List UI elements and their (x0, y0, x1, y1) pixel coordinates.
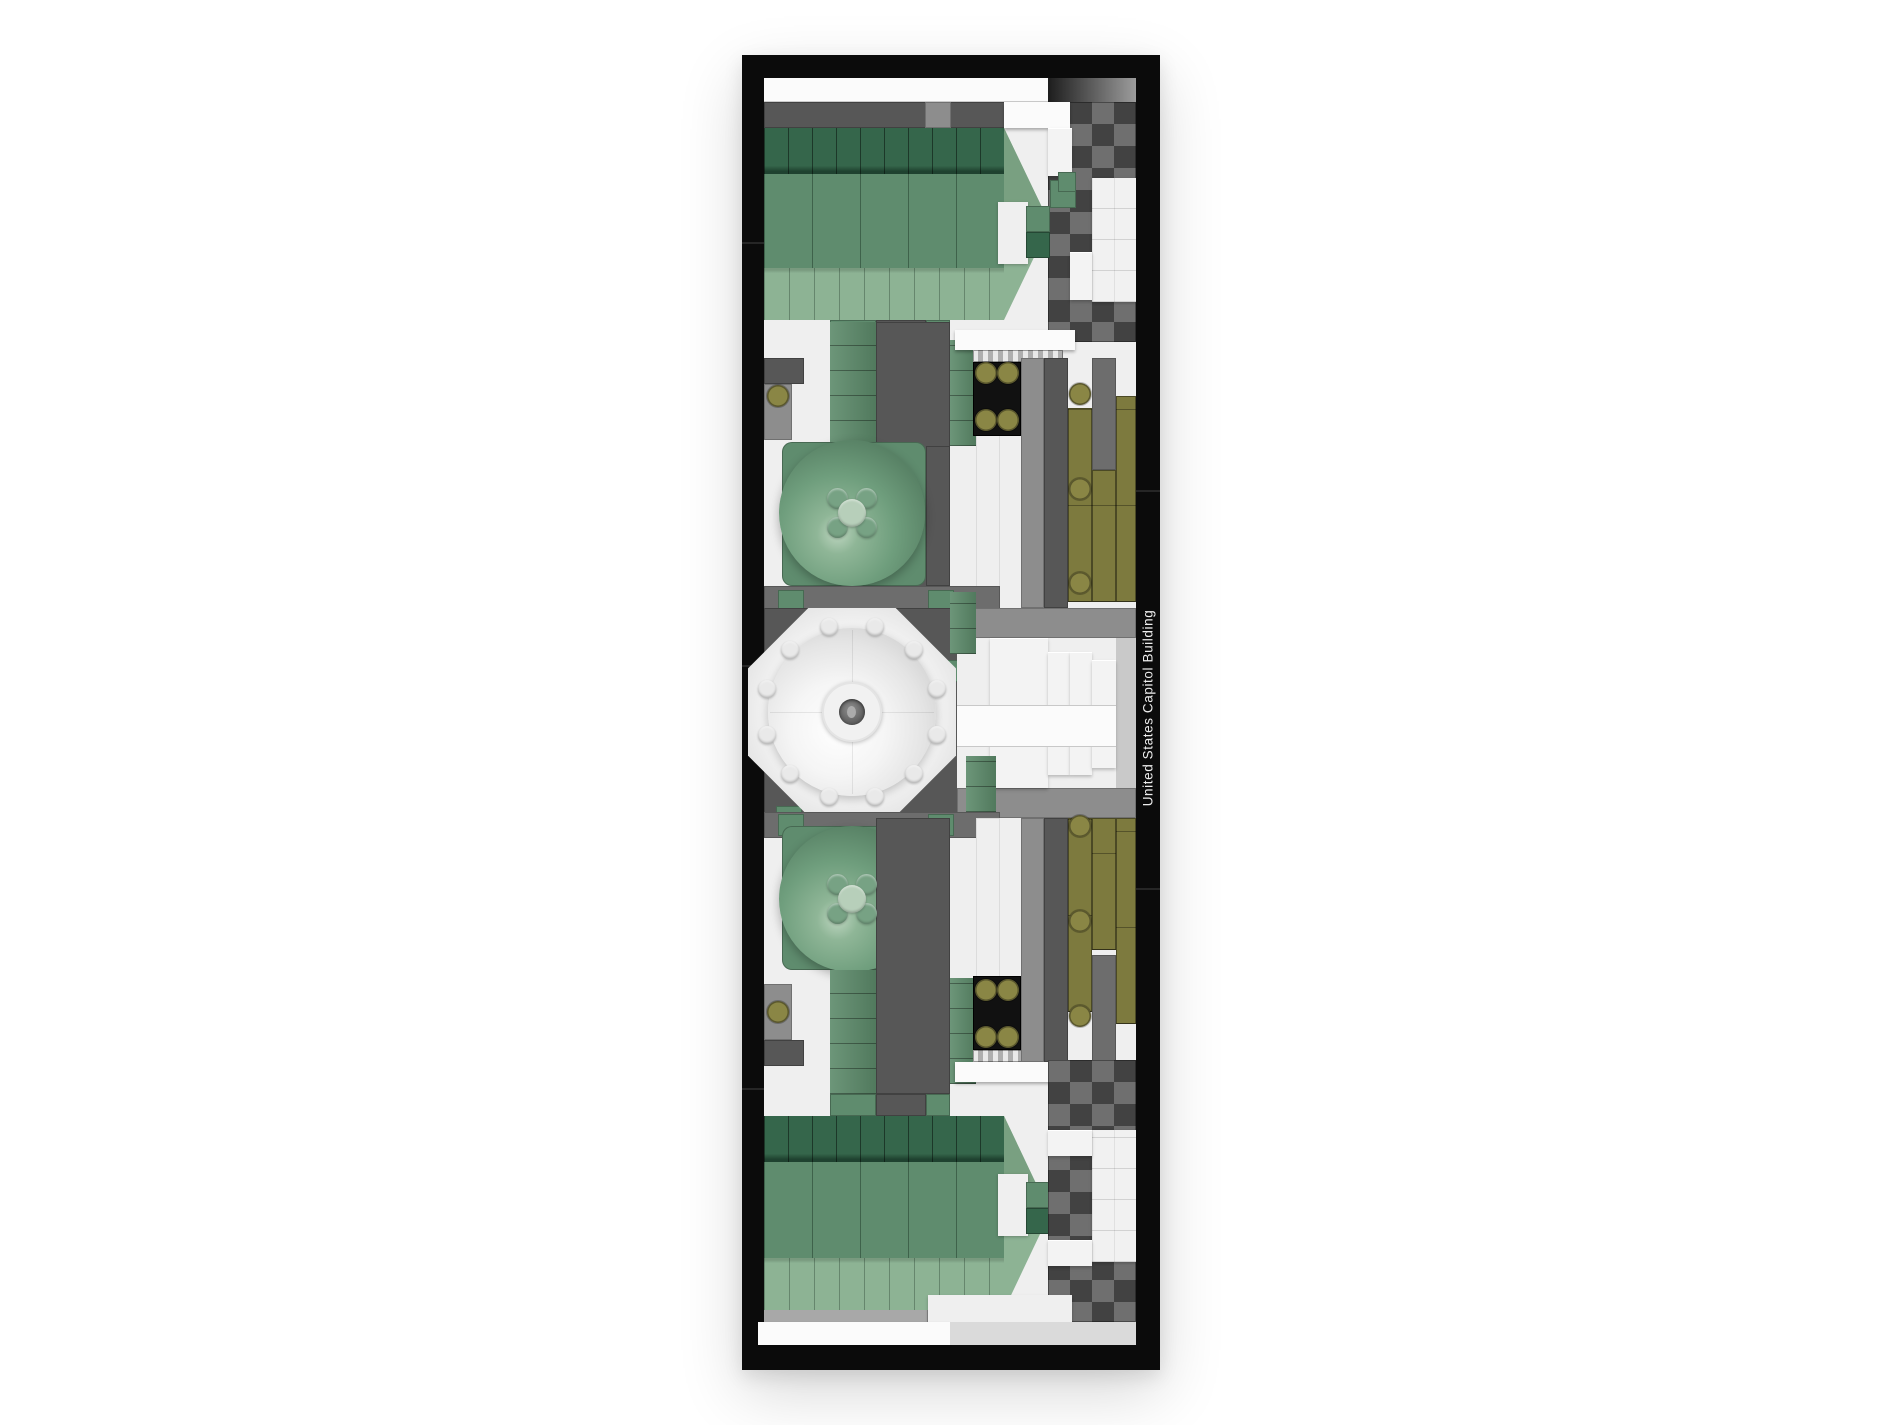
se-tree-pad (973, 976, 1021, 1050)
north-connector-green-tiles (830, 322, 876, 446)
se-white-step (1048, 1240, 1092, 1266)
west-notch-dark (764, 358, 804, 384)
south-cross-roof-brick (1026, 1182, 1050, 1208)
north-cross-roof-brick (1026, 206, 1050, 232)
west-notch-gray-south (764, 984, 792, 1040)
ne-white-step (1070, 252, 1092, 300)
north-roof-lower-slope (764, 268, 1004, 320)
se-white-tile-column (1092, 1130, 1136, 1262)
east-steps-north-band (957, 608, 1136, 638)
south-white-slab (928, 1295, 1072, 1323)
east-steps-center-landing (957, 705, 1116, 747)
ne-plaza-column-mid (1092, 358, 1116, 470)
senate-chamber-skylight (1116, 396, 1136, 602)
west-notch-gray (764, 384, 792, 440)
north-terrace-row (764, 78, 1048, 102)
house-chamber-skylight (1068, 818, 1092, 1012)
steps-flank-green-north (950, 592, 976, 654)
ne-plaza-column-dark (1044, 358, 1068, 608)
frame-bottom (742, 1345, 1160, 1370)
ne-white-step (1004, 102, 1070, 128)
se-plaza-column-dark (1044, 818, 1068, 1062)
south-cross-roof-brick-dark (1026, 1208, 1050, 1234)
north-wing-white-inset (998, 202, 1028, 264)
ne-tree-pad (973, 362, 1021, 436)
senate-dome-gray-east (926, 446, 950, 586)
se-white-step (1048, 1130, 1092, 1156)
roof-valley-gray-south (876, 1094, 926, 1116)
south-connector-gray-column (876, 818, 950, 1094)
south-roof-upper-slope (764, 1116, 1004, 1162)
south-wing-white-inset (998, 1174, 1028, 1236)
south-terrace-row (758, 1322, 950, 1345)
statue-of-freedom (847, 706, 856, 718)
house-chamber-skylight (1116, 818, 1136, 1024)
north-cross-roof-brick-dark (1026, 232, 1050, 258)
gradient-tile-bar-top (1048, 78, 1136, 102)
frame-tile-seam (742, 242, 764, 244)
se-plaza-column-light (1021, 818, 1044, 1062)
ne-green-accent (1058, 172, 1076, 192)
plaque-title: United States Capitol Building (1141, 610, 1156, 807)
ne-white-step (1048, 128, 1072, 176)
roof-valley-green-south (926, 1094, 950, 1116)
capitol-model-render: United States Capitol Building (0, 0, 1900, 1425)
plaque-tile-seam (1136, 490, 1160, 492)
north-roof-ridge (764, 174, 1004, 268)
senate-chamber-skylight (1068, 408, 1092, 602)
frame-tile-seam (742, 1088, 764, 1090)
south-connector-green-tiles (830, 970, 876, 1094)
north-gray-accent (925, 102, 951, 128)
south-light-row (950, 1322, 1136, 1345)
north-roof-upper-slope (764, 128, 1004, 174)
se-plaza-column-mid (1092, 955, 1116, 1062)
roof-valley-green-south (830, 1094, 876, 1116)
ne-plaza-column-light (1021, 358, 1044, 608)
south-roof-ridge (764, 1162, 1004, 1258)
west-notch-dark-south (764, 1040, 804, 1066)
ne-white-tile-column (1092, 178, 1136, 302)
house-chamber-skylight (1092, 818, 1116, 950)
senate-wing-dome (779, 440, 925, 586)
steps-flank-green-south (966, 756, 996, 812)
plaque-tile-seam (1136, 888, 1160, 890)
ne-balustrade (955, 330, 1075, 350)
frame-top (742, 55, 1160, 78)
senate-chamber-skylight (1092, 470, 1116, 602)
east-plaza-edge (1116, 638, 1136, 788)
ne-white-edge (1116, 342, 1136, 396)
